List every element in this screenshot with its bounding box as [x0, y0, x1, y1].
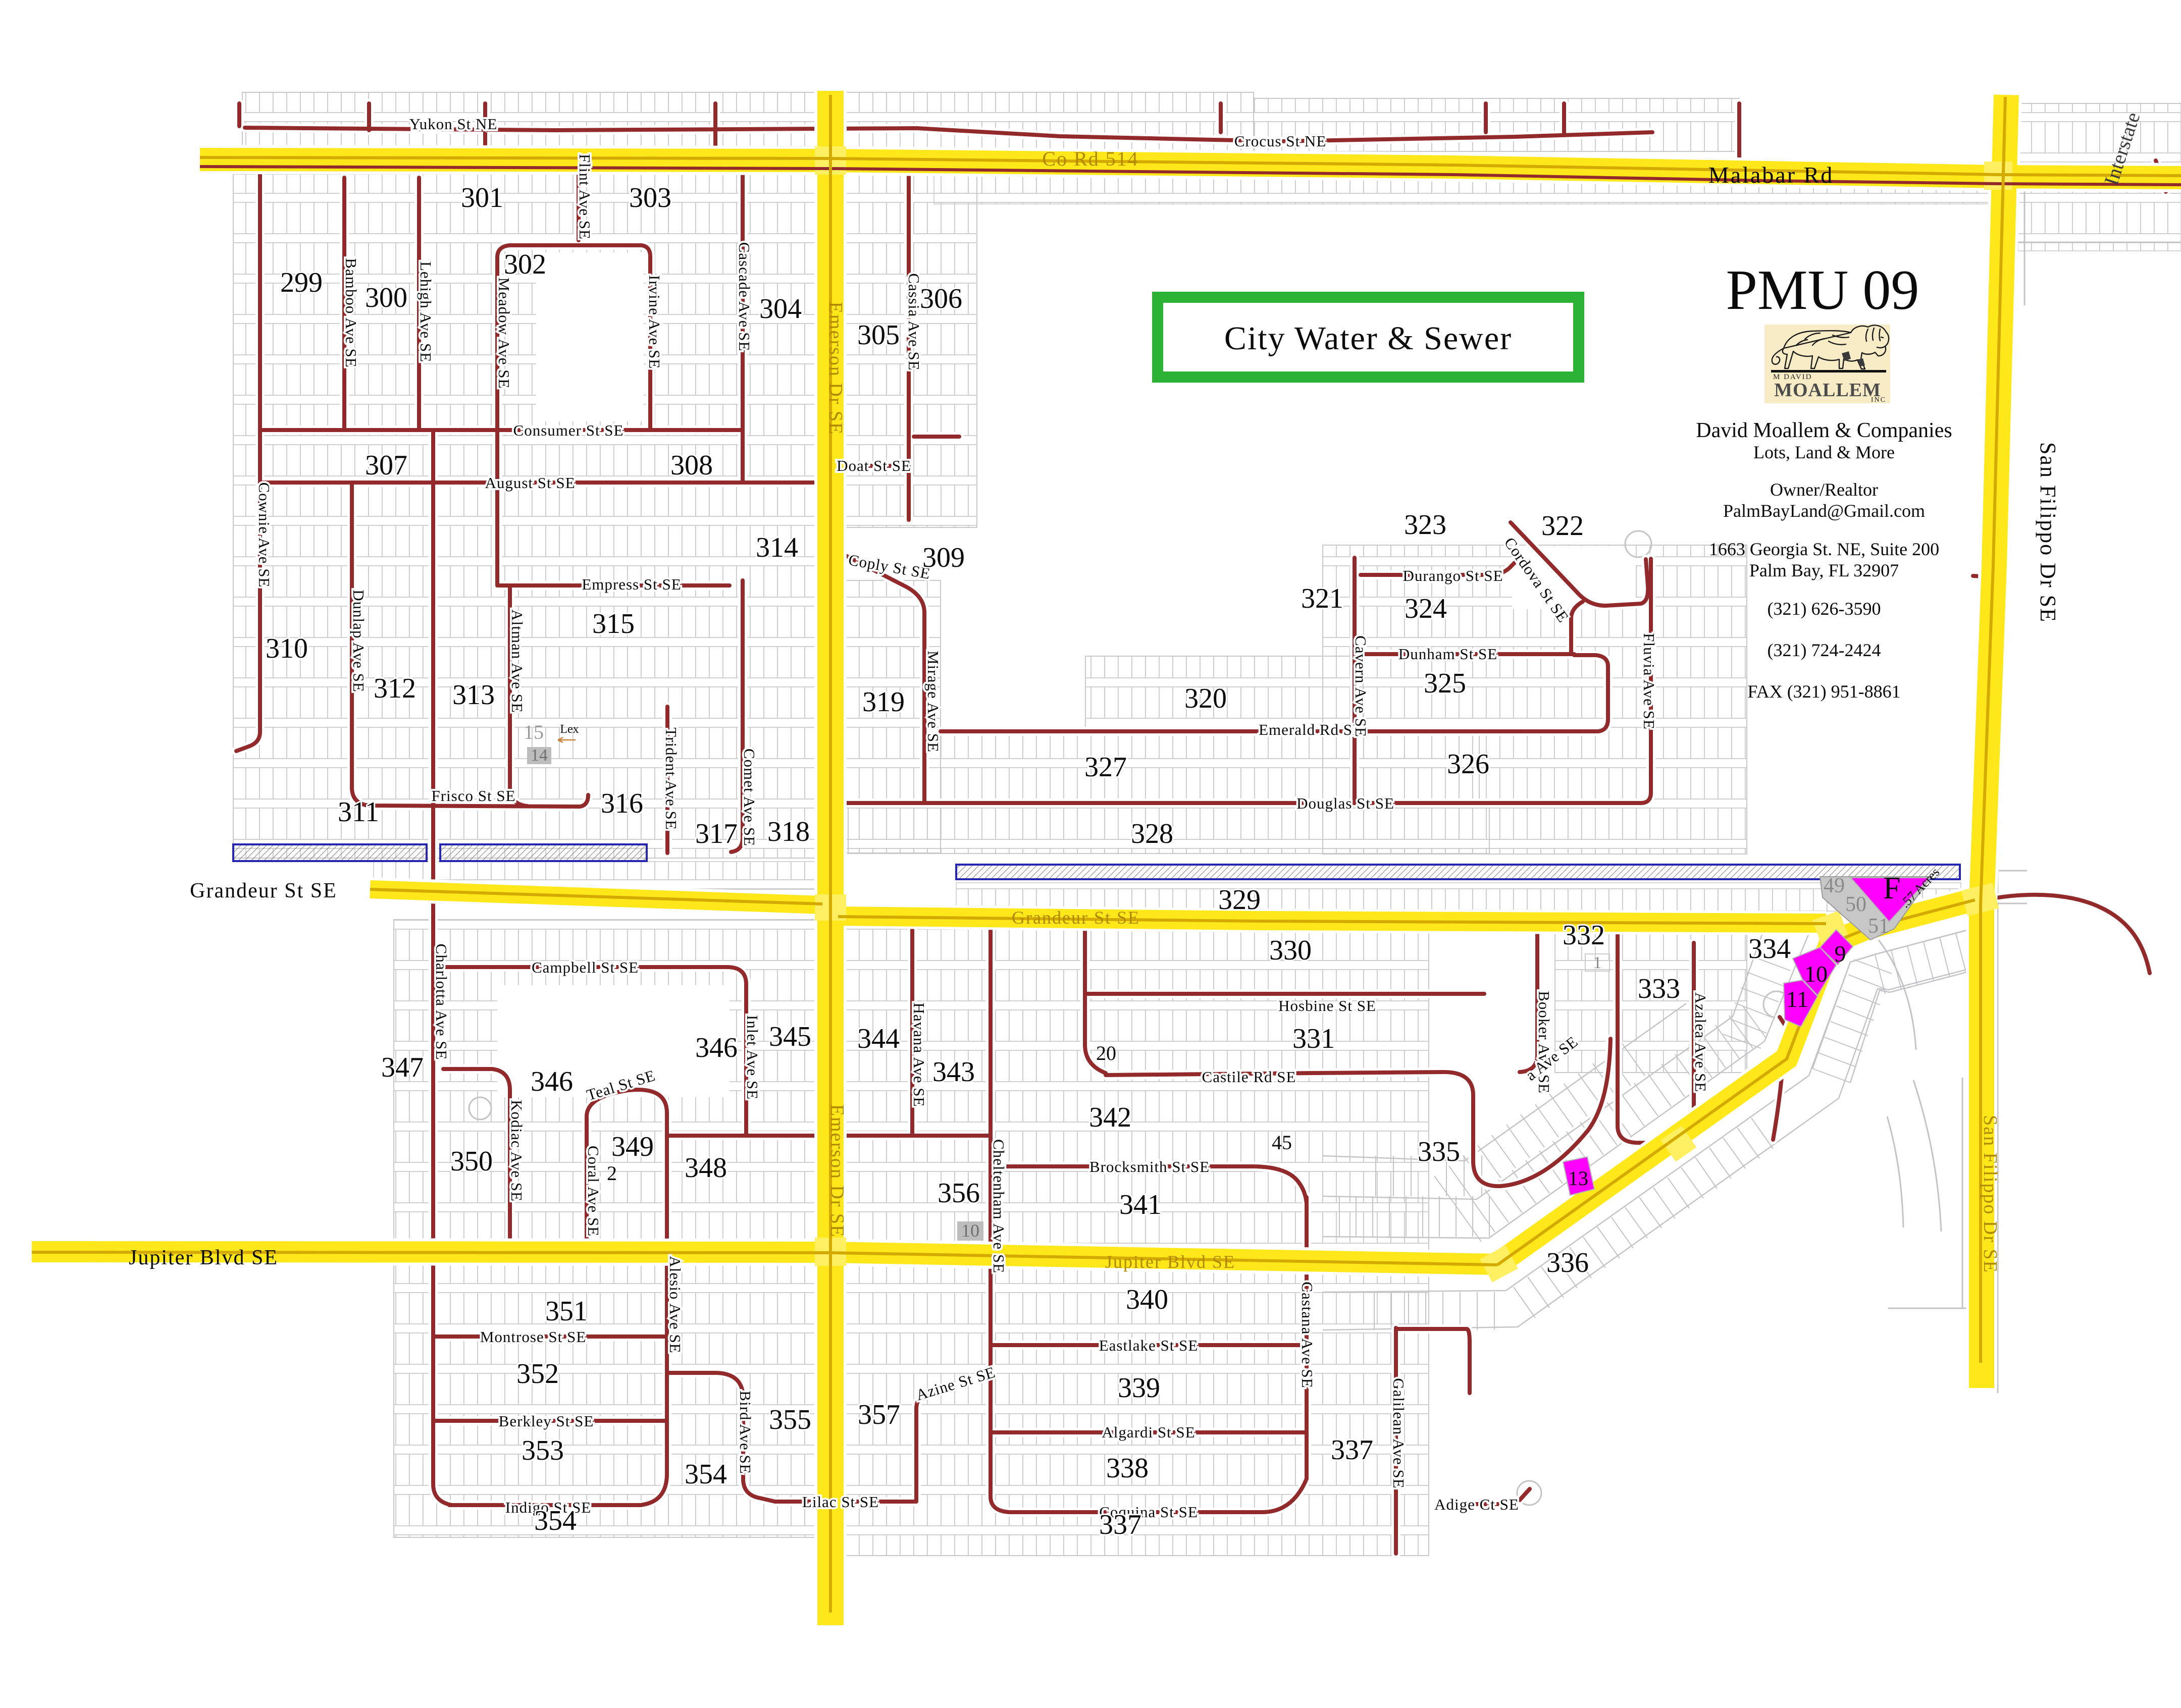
- svg-text:335: 335: [1418, 1136, 1460, 1167]
- svg-text:Coral Ave SE: Coral Ave SE: [585, 1146, 602, 1237]
- svg-text:City Water & Sewer: City Water & Sewer: [1224, 320, 1512, 357]
- svg-text:Yukon St NE: Yukon St NE: [409, 115, 498, 133]
- svg-text:337: 337: [1331, 1434, 1373, 1466]
- svg-text:330: 330: [1269, 935, 1312, 966]
- svg-text:Fluvia Ave SE: Fluvia Ave SE: [1640, 633, 1658, 730]
- svg-text:David Moallem & Companies: David Moallem & Companies: [1696, 419, 1952, 442]
- svg-text:Cownie Ave SE: Cownie Ave SE: [255, 483, 273, 588]
- svg-text:PMU 09: PMU 09: [1726, 259, 1919, 322]
- svg-text:Inlet Ave SE: Inlet Ave SE: [744, 1015, 761, 1100]
- svg-text:Trident Ave SE: Trident Ave SE: [662, 727, 680, 830]
- svg-text:314: 314: [756, 532, 798, 563]
- svg-text:Jupiter Blvd SE: Jupiter Blvd SE: [129, 1246, 278, 1269]
- svg-text:1: 1: [1593, 953, 1602, 972]
- svg-text:355: 355: [769, 1404, 811, 1435]
- svg-text:302: 302: [504, 249, 546, 280]
- svg-text:Adige Ct SE: Adige Ct SE: [1434, 1496, 1519, 1513]
- svg-text:Bird Ave SE: Bird Ave SE: [737, 1391, 754, 1474]
- svg-text:Flint Ave SE: Flint Ave SE: [576, 154, 594, 240]
- svg-text:329: 329: [1218, 884, 1261, 916]
- svg-text:9: 9: [1835, 941, 1846, 967]
- svg-text:354: 354: [685, 1459, 727, 1490]
- svg-text:Co Rd 514: Co Rd 514: [1042, 147, 1138, 170]
- svg-text:308: 308: [670, 450, 713, 481]
- svg-text:Malabar Rd: Malabar Rd: [1708, 162, 1834, 188]
- svg-text:Lex: Lex: [560, 723, 579, 736]
- svg-text:Doat St SE: Doat St SE: [837, 457, 911, 474]
- svg-text:(321) 724-2424: (321) 724-2424: [1768, 640, 1881, 660]
- svg-text:Castana Ave SE: Castana Ave SE: [1299, 1282, 1316, 1388]
- svg-text:316: 316: [601, 788, 643, 819]
- svg-text:45: 45: [1272, 1131, 1292, 1154]
- svg-text:315: 315: [592, 608, 635, 639]
- svg-text:49: 49: [1824, 874, 1845, 897]
- svg-text:311: 311: [338, 796, 379, 828]
- svg-text:319: 319: [862, 686, 905, 718]
- svg-text:Algardi St SE: Algardi St SE: [1102, 1423, 1195, 1441]
- svg-text:10: 10: [961, 1220, 979, 1241]
- svg-text:347: 347: [381, 1052, 424, 1083]
- svg-text:PalmBayLand@Gmail.com: PalmBayLand@Gmail.com: [1723, 501, 1925, 521]
- svg-text:322: 322: [1541, 510, 1584, 542]
- svg-text:350: 350: [450, 1146, 493, 1177]
- svg-text:326: 326: [1447, 749, 1489, 780]
- svg-text:356: 356: [938, 1178, 980, 1209]
- svg-text:344: 344: [857, 1023, 900, 1054]
- svg-text:345: 345: [769, 1021, 811, 1052]
- svg-text:Lehigh Ave SE: Lehigh Ave SE: [417, 261, 435, 362]
- svg-text:San Filippo Dr SE: San Filippo Dr SE: [1980, 1115, 2001, 1273]
- svg-text:303: 303: [629, 182, 671, 213]
- svg-text:348: 348: [685, 1152, 727, 1184]
- svg-text:321: 321: [1301, 583, 1343, 614]
- svg-text:Emerald Rd SE: Emerald Rd SE: [1259, 721, 1363, 738]
- svg-text:20: 20: [1096, 1042, 1116, 1064]
- svg-text:346: 346: [531, 1066, 573, 1097]
- svg-text:313: 313: [452, 679, 495, 711]
- svg-text:353: 353: [522, 1435, 564, 1466]
- svg-text:2: 2: [607, 1162, 617, 1185]
- svg-text:352: 352: [516, 1358, 559, 1390]
- svg-text:10: 10: [1804, 961, 1828, 987]
- svg-text:357: 357: [858, 1399, 900, 1430]
- svg-text:Hosbine St SE: Hosbine St SE: [1278, 997, 1376, 1015]
- svg-text:341: 341: [1119, 1189, 1162, 1220]
- svg-text:331: 331: [1292, 1023, 1335, 1054]
- svg-text:Montrose St SE: Montrose St SE: [480, 1328, 586, 1346]
- svg-text:299: 299: [280, 267, 323, 298]
- svg-text:328: 328: [1131, 818, 1173, 849]
- svg-text:327: 327: [1084, 752, 1127, 783]
- svg-text:51: 51: [1868, 915, 1889, 938]
- svg-text:Kodiac Ave SE: Kodiac Ave SE: [508, 1100, 526, 1202]
- svg-text:337: 337: [1099, 1509, 1141, 1540]
- svg-text:Consumer St SE: Consumer St SE: [513, 421, 624, 439]
- svg-text:346: 346: [695, 1032, 738, 1063]
- svg-text:Grandeur St SE: Grandeur St SE: [190, 879, 337, 902]
- svg-text:(321) 626-3590: (321) 626-3590: [1768, 599, 1881, 619]
- svg-text:14: 14: [531, 746, 548, 765]
- svg-text:342: 342: [1089, 1102, 1131, 1133]
- svg-text:325: 325: [1424, 668, 1466, 699]
- svg-text:305: 305: [857, 319, 900, 351]
- svg-text:Cascade Ave SE: Cascade Ave SE: [736, 242, 753, 352]
- svg-text:August St SE: August St SE: [485, 474, 575, 492]
- svg-text:301: 301: [461, 182, 503, 213]
- svg-text:354: 354: [534, 1505, 577, 1536]
- svg-text:339: 339: [1118, 1372, 1160, 1404]
- svg-text:332: 332: [1563, 920, 1605, 951]
- svg-text:Cheltenham Ave SE: Cheltenham Ave SE: [990, 1139, 1008, 1273]
- svg-text:Eastlake St SE: Eastlake St SE: [1099, 1337, 1199, 1354]
- svg-text:Cavern Ave SE: Cavern Ave SE: [1352, 635, 1370, 737]
- svg-text:Irvine Ave SE: Irvine Ave SE: [646, 275, 663, 369]
- svg-text:317: 317: [695, 818, 738, 849]
- svg-text:Grandeur St SE: Grandeur St SE: [1012, 908, 1140, 928]
- svg-text:306: 306: [920, 283, 962, 314]
- svg-text:Emerson Dr SE: Emerson Dr SE: [825, 302, 846, 436]
- svg-text:Palm Bay, FL 32907: Palm Bay, FL 32907: [1749, 560, 1899, 580]
- svg-text:323: 323: [1404, 509, 1446, 541]
- svg-text:Azalea Ave SE: Azalea Ave SE: [1692, 992, 1709, 1092]
- svg-text:Charlotta Ave SE: Charlotta Ave SE: [433, 944, 450, 1060]
- svg-text:Galilean Ave SE: Galilean Ave SE: [1390, 1378, 1408, 1488]
- svg-text:13: 13: [1568, 1167, 1588, 1190]
- svg-text:MOALLEM: MOALLEM: [1774, 380, 1881, 401]
- svg-text:343: 343: [932, 1056, 975, 1088]
- svg-text:333: 333: [1638, 973, 1680, 1004]
- svg-text:Durango St SE: Durango St SE: [1403, 567, 1503, 584]
- svg-text:Bamboo Ave SE: Bamboo Ave SE: [342, 258, 360, 367]
- svg-text:Jupiter Blvd SE: Jupiter Blvd SE: [1105, 1252, 1235, 1272]
- svg-text:1663 Georgia St. NE, Suite 200: 1663 Georgia St. NE, Suite 200: [1709, 539, 1939, 559]
- svg-text:334: 334: [1748, 933, 1791, 965]
- svg-text:Altman Ave SE: Altman Ave SE: [508, 609, 526, 713]
- svg-text:312: 312: [374, 673, 416, 704]
- svg-text:318: 318: [767, 816, 810, 847]
- svg-text:Emerson Dr SE: Emerson Dr SE: [826, 1104, 848, 1238]
- svg-text:320: 320: [1184, 683, 1227, 714]
- svg-text:307: 307: [365, 450, 407, 481]
- svg-text:Berkley St SE: Berkley St SE: [499, 1412, 594, 1430]
- svg-text:324: 324: [1405, 593, 1447, 624]
- svg-text:11: 11: [1786, 986, 1808, 1012]
- svg-text:Havana Ave SE: Havana Ave SE: [910, 1003, 928, 1107]
- svg-text:San Filippo Dr SE: San Filippo Dr SE: [2036, 442, 2060, 623]
- svg-text:351: 351: [545, 1296, 588, 1327]
- svg-text:Mirage Ave SE: Mirage Ave SE: [924, 651, 942, 753]
- svg-text:FAX (321) 951-8861: FAX (321) 951-8861: [1747, 681, 1900, 702]
- svg-text:Crocus St NE: Crocus St NE: [1234, 132, 1327, 150]
- svg-text:336: 336: [1546, 1247, 1589, 1278]
- svg-text:Dunham St SE: Dunham St SE: [1398, 645, 1497, 663]
- svg-text:Owner/Realtor: Owner/Realtor: [1770, 479, 1878, 500]
- svg-text:50: 50: [1845, 893, 1866, 916]
- svg-text:Frisco St SE: Frisco St SE: [431, 787, 515, 805]
- svg-text:INC: INC: [1871, 396, 1886, 404]
- svg-text:Douglas St SE: Douglas St SE: [1296, 794, 1394, 812]
- svg-text:338: 338: [1106, 1453, 1149, 1484]
- svg-text:Campbell St SE: Campbell St SE: [532, 958, 639, 976]
- svg-text:Lots, Land & More: Lots, Land & More: [1753, 442, 1895, 462]
- svg-text:Comet Ave SE: Comet Ave SE: [741, 749, 758, 846]
- svg-text:Castile Rd SE: Castile Rd SE: [1202, 1068, 1296, 1086]
- svg-text:15: 15: [524, 721, 544, 743]
- svg-text:309: 309: [922, 542, 965, 573]
- svg-text:Alesio Ave SE: Alesio Ave SE: [666, 1256, 684, 1353]
- svg-text:Meadow Ave SE: Meadow Ave SE: [495, 278, 513, 389]
- svg-text:300: 300: [365, 282, 407, 313]
- svg-text:340: 340: [1126, 1284, 1168, 1315]
- svg-text:Dunlap Ave SE: Dunlap Ave SE: [350, 590, 368, 692]
- svg-text:349: 349: [611, 1131, 654, 1162]
- svg-text:Brocksmith St SE: Brocksmith St SE: [1089, 1158, 1210, 1176]
- svg-text:304: 304: [759, 293, 802, 325]
- svg-text:310: 310: [266, 633, 308, 664]
- svg-text:Lilac St SE: Lilac St SE: [802, 1493, 879, 1511]
- svg-text:Empress St SE: Empress St SE: [582, 575, 681, 593]
